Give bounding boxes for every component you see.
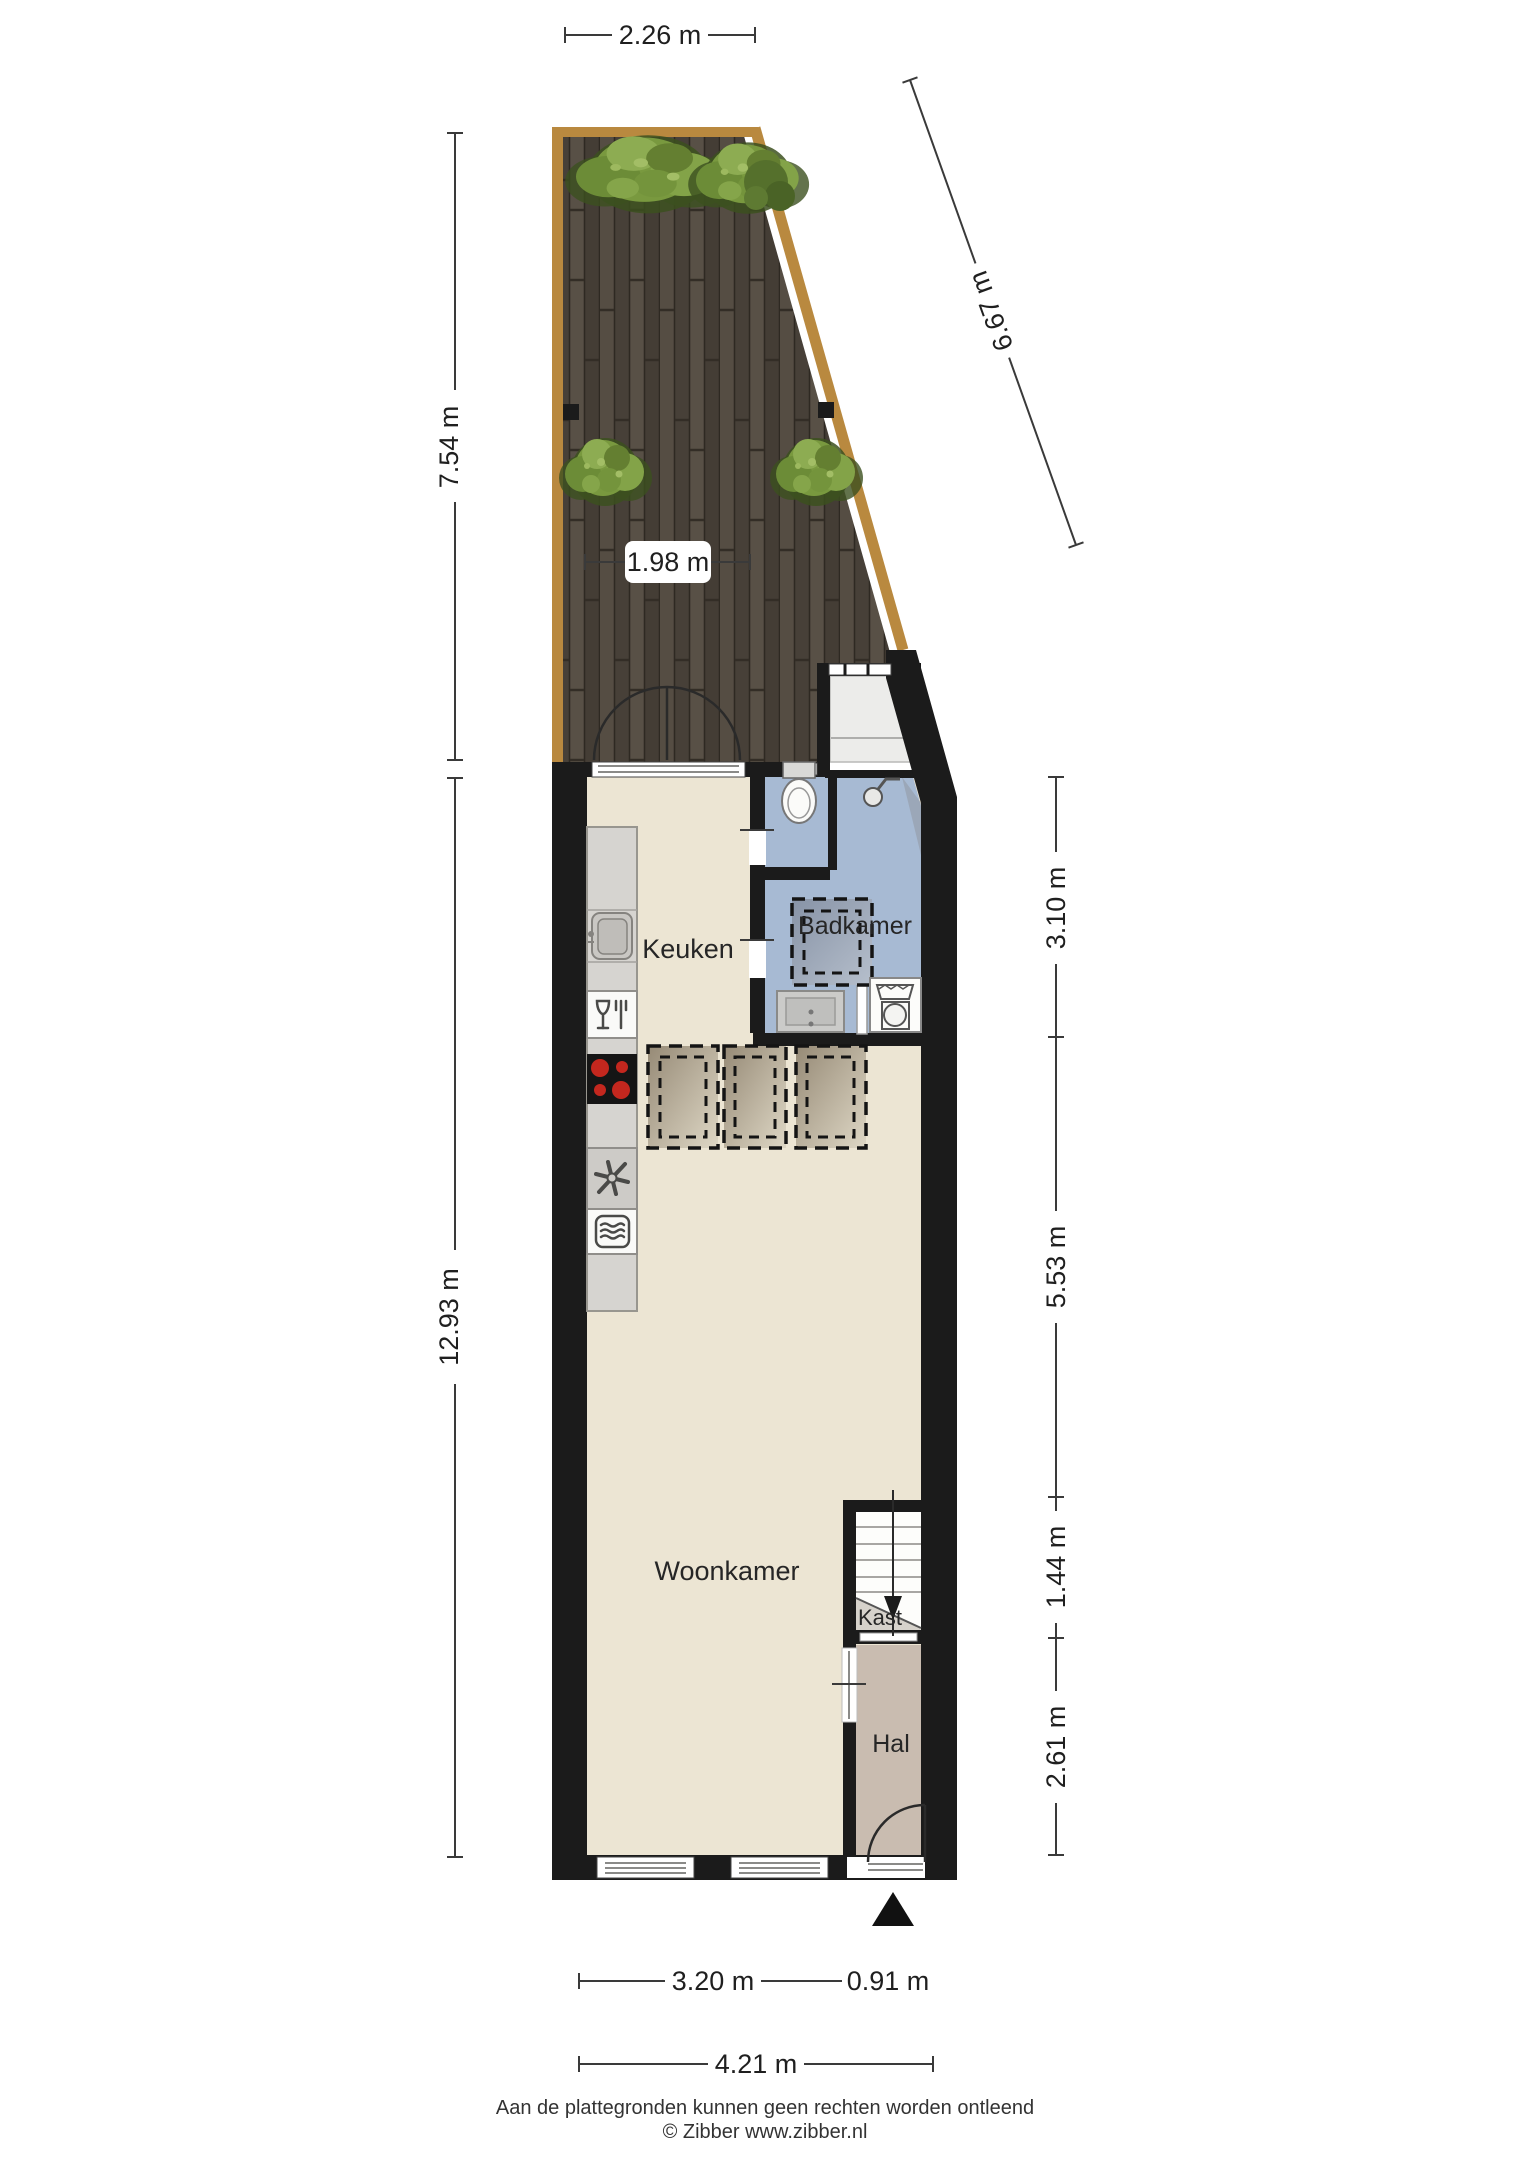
dim-garden-width-top: 2.26 m [565, 18, 755, 52]
label-closet: Kast [858, 1605, 902, 1630]
garden-border-left [552, 127, 563, 762]
wall-top-left-stub [552, 762, 592, 777]
svg-text:12.93 m: 12.93 m [434, 1268, 464, 1366]
svg-text:7.54 m: 7.54 m [434, 406, 464, 489]
garden-post-left [563, 404, 579, 420]
dishwasher [587, 991, 637, 1038]
kitchen-sink [588, 913, 632, 959]
extension-window [829, 664, 891, 675]
label-bathroom: Badkamer [798, 912, 912, 940]
wall-toilet-bottom [753, 867, 830, 880]
wall-extension-left [817, 663, 830, 770]
toilet [782, 762, 816, 823]
window-living-right [731, 1857, 828, 1878]
kitchen-counter [587, 827, 637, 1311]
dim-right-mid: 5.53 m [1037, 1037, 1075, 1497]
svg-text:3.10 m: 3.10 m [1041, 867, 1071, 950]
washbasin [777, 991, 844, 1032]
dim-right-top: 3.10 m [1037, 777, 1075, 1037]
svg-text:3.20 m: 3.20 m [672, 1966, 755, 1996]
dim-garden-depth-left: 7.54 m [434, 133, 474, 760]
oven [587, 1209, 637, 1254]
garden-post-right [818, 402, 834, 418]
floorplan-canvas: Keuken Badkamer Woonkamer Kast Hal 2.26 … [0, 0, 1527, 2160]
skylight-boxes [648, 1046, 866, 1148]
wall-bathroom-left-a [750, 777, 765, 830]
label-kitchen: Keuken [642, 934, 734, 964]
wall-toilet-divider [828, 770, 837, 870]
dim-bottom-living: 3.20 m [579, 1964, 848, 1998]
footer: Aan de plattegronden kunnen geen rechten… [496, 2097, 1034, 2143]
footer-copyright: © Zibber www.zibber.nl [663, 2121, 868, 2143]
svg-text:2.26 m: 2.26 m [619, 20, 702, 50]
floorplan-page: Keuken Badkamer Woonkamer Kast Hal 2.26 … [0, 0, 1527, 2160]
garden-door-threshold [592, 762, 745, 777]
kast-hall-door [860, 1633, 917, 1641]
footer-disclaimer: Aan de plattegronden kunnen geen rechten… [496, 2097, 1034, 2119]
entrance-arrow [872, 1892, 914, 1926]
svg-text:5.53 m: 5.53 m [1041, 1226, 1071, 1309]
wall-bathroom-left-c [750, 978, 765, 1033]
svg-text:1.98 m: 1.98 m [627, 547, 710, 577]
dim-bottom-hall: 0.91 m [842, 1964, 934, 1998]
skylight-box-2 [724, 1046, 786, 1148]
dim-house-depth-left: 12.93 m [434, 778, 474, 1857]
svg-text:2.61 m: 2.61 m [1041, 1706, 1071, 1789]
dim-right-lower: 1.44 m [1037, 1497, 1075, 1638]
dim-right-bottom: 2.61 m [1037, 1638, 1075, 1855]
dim-plot-edge-right: 6.67 m [903, 77, 1084, 547]
svg-text:6.67 m: 6.67 m [963, 267, 1019, 355]
extractor-fan [587, 1148, 637, 1209]
svg-text:0.91 m: 0.91 m [847, 1966, 930, 1996]
label-living: Woonkamer [654, 1556, 799, 1586]
dim-bottom-total: 4.21 m [579, 2047, 933, 2081]
window-living-left [597, 1857, 694, 1878]
wall-left [552, 762, 587, 1880]
label-hall: Hal [872, 1730, 910, 1758]
wall-bathroom-bottom [753, 1033, 925, 1046]
svg-text:4.21 m: 4.21 m [715, 2049, 798, 2079]
wall-extension-bottom [825, 770, 921, 778]
cooktop [587, 1054, 637, 1104]
washing-machine [870, 978, 921, 1032]
svg-text:1.44 m: 1.44 m [1041, 1526, 1071, 1609]
